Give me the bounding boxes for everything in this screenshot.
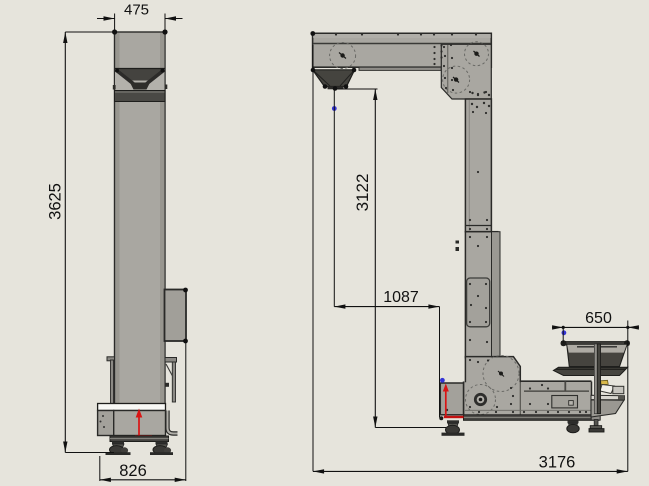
svg-text:826: 826 (119, 462, 147, 480)
svg-text:3122: 3122 (353, 174, 372, 212)
svg-text:3625: 3625 (47, 183, 65, 220)
svg-text:1087: 1087 (383, 289, 419, 306)
svg-text:3176: 3176 (539, 454, 576, 472)
svg-text:475: 475 (124, 2, 149, 19)
svg-text:650: 650 (585, 310, 612, 327)
